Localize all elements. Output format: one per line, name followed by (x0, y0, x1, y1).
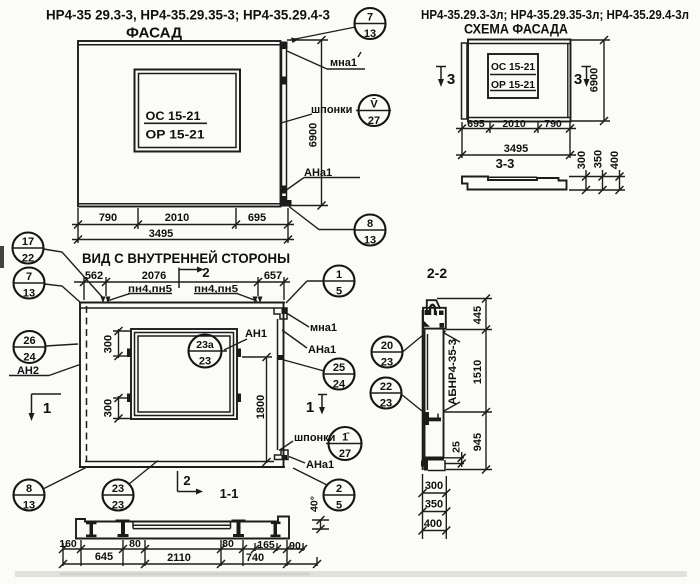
svg-text:13: 13 (23, 500, 35, 512)
svg-text:ОС 15-21: ОС 15-21 (491, 61, 535, 73)
svg-text:300: 300 (576, 151, 588, 169)
svg-text:350: 350 (593, 150, 605, 168)
svg-text:300: 300 (103, 335, 115, 353)
svg-text:ФАСАД: ФАСАД (126, 25, 182, 42)
svg-text:695: 695 (248, 212, 266, 224)
svg-text:СХЕМА ФАСАДА: СХЕМА ФАСАДА (464, 21, 568, 37)
svg-text:300: 300 (425, 480, 443, 492)
svg-text:23: 23 (381, 357, 393, 369)
svg-text:шпонки: шпонки (311, 104, 352, 116)
svg-text:ОР 15-21: ОР 15-21 (146, 128, 205, 142)
svg-text:350: 350 (425, 499, 443, 511)
svg-text:17: 17 (22, 236, 34, 248)
svg-text:АН1: АН1 (245, 328, 267, 340)
svg-text:2-2: 2-2 (427, 265, 447, 281)
svg-text:90: 90 (289, 540, 301, 552)
svg-text:3-3: 3-3 (496, 156, 515, 171)
svg-text:13: 13 (364, 28, 376, 40)
svg-text:мна1: мна1 (310, 322, 337, 334)
svg-text:165: 165 (257, 539, 275, 551)
svg-text:400: 400 (609, 151, 621, 169)
svg-text:26: 26 (23, 335, 35, 347)
svg-text:ОС 15-21: ОС 15-21 (146, 109, 201, 123)
svg-text:23а: 23а (196, 339, 214, 351)
svg-text:АБНР4-35-3: АБНР4-35-3 (447, 339, 459, 405)
svg-text:6900: 6900 (308, 123, 320, 147)
svg-text:1: 1 (336, 269, 342, 281)
svg-text:1-1: 1-1 (220, 486, 239, 501)
svg-text:V̄: V̄ (370, 98, 378, 110)
svg-text:2010: 2010 (502, 118, 526, 130)
svg-text:8: 8 (26, 483, 32, 495)
svg-text:1: 1 (306, 399, 314, 416)
svg-text:НР4-35 29.3-3, НР4-35.29.35-3;: НР4-35 29.3-3, НР4-35.29.35-3; НР4-35.29… (46, 7, 330, 23)
svg-text:27: 27 (368, 115, 380, 127)
svg-text:27: 27 (339, 448, 351, 460)
svg-text:мна1: мна1 (330, 57, 357, 69)
svg-text:8: 8 (367, 218, 373, 230)
svg-text:5: 5 (336, 286, 342, 298)
svg-text:2110: 2110 (167, 552, 191, 564)
svg-text:6900: 6900 (589, 68, 601, 92)
svg-text:445: 445 (472, 306, 484, 324)
svg-text:5: 5 (336, 500, 342, 512)
svg-text:АНа1: АНа1 (306, 459, 334, 471)
svg-text:3495: 3495 (504, 143, 528, 155)
svg-text:80: 80 (222, 538, 234, 550)
svg-text:7: 7 (26, 271, 32, 283)
svg-text:23: 23 (112, 500, 124, 512)
svg-text:20: 20 (381, 340, 393, 352)
svg-text:23: 23 (380, 398, 392, 410)
svg-text:945: 945 (472, 433, 484, 451)
svg-text:22: 22 (380, 381, 392, 393)
svg-text:3495: 3495 (149, 228, 173, 240)
svg-text:2076: 2076 (142, 270, 166, 282)
svg-text:657: 657 (264, 270, 282, 282)
svg-text:АНа1: АНа1 (308, 344, 336, 356)
svg-text:40°: 40° (309, 496, 321, 512)
svg-text:7: 7 (367, 12, 373, 24)
svg-text:1: 1 (43, 400, 51, 417)
svg-text:790: 790 (544, 118, 562, 130)
svg-text:790: 790 (99, 212, 117, 224)
svg-text:24: 24 (333, 379, 346, 391)
svg-text:23: 23 (199, 356, 211, 368)
svg-text:80: 80 (129, 538, 141, 550)
svg-text:1510: 1510 (472, 360, 484, 384)
svg-text:160: 160 (59, 538, 77, 550)
svg-text:2010: 2010 (165, 212, 189, 224)
svg-text:23: 23 (112, 483, 124, 495)
svg-text:400: 400 (424, 518, 442, 530)
svg-text:25: 25 (451, 441, 463, 453)
svg-text:740: 740 (246, 552, 264, 564)
svg-text:22: 22 (22, 253, 34, 265)
svg-text:1800: 1800 (255, 395, 267, 419)
svg-text:3: 3 (574, 71, 582, 88)
svg-text:2: 2 (183, 473, 190, 488)
svg-text:24: 24 (23, 352, 36, 364)
svg-text:300: 300 (103, 399, 115, 417)
svg-text:695: 695 (467, 118, 485, 130)
svg-text:25: 25 (333, 362, 345, 374)
svg-text:ОР 15-21: ОР 15-21 (491, 79, 535, 91)
svg-text:2: 2 (336, 483, 342, 495)
svg-text:13: 13 (364, 235, 376, 247)
svg-text:13: 13 (23, 288, 35, 300)
svg-text:2: 2 (202, 265, 209, 280)
svg-text:3: 3 (447, 71, 455, 88)
svg-text:ВИД С ВНУТРЕННЕЙ СТОРОНЫ: ВИД С ВНУТРЕННЕЙ СТОРОНЫ (82, 249, 290, 266)
svg-text:645: 645 (95, 551, 113, 563)
